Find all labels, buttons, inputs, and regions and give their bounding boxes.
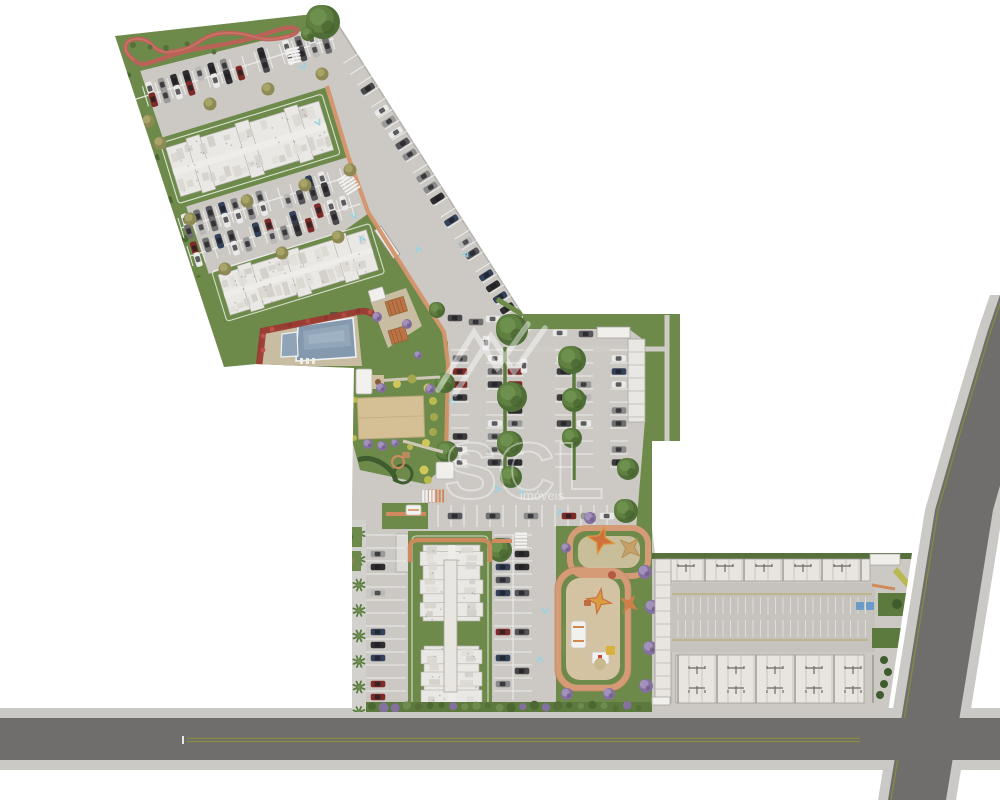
svg-text:imóveis: imóveis — [520, 488, 565, 503]
